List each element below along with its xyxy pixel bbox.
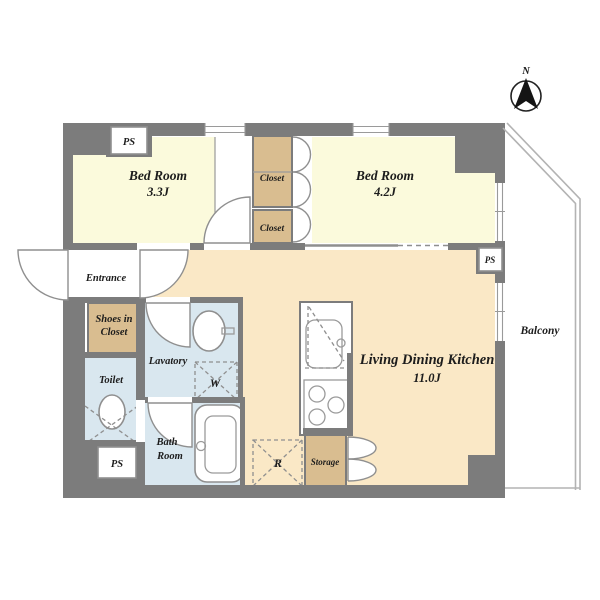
door-gap bbox=[204, 243, 250, 250]
compass-label: N bbox=[521, 66, 530, 77]
refrigerator-label: R bbox=[273, 458, 282, 470]
ps-right-label: PS bbox=[485, 255, 496, 265]
wall-segment bbox=[303, 428, 347, 434]
window-gap bbox=[353, 123, 389, 136]
ldk-size: 11.0J bbox=[413, 371, 441, 385]
storage-label: Storage bbox=[311, 457, 340, 467]
window-gap bbox=[205, 123, 245, 136]
entrance-door bbox=[18, 250, 68, 300]
door-gap bbox=[146, 297, 190, 303]
balcony-label: Balcony bbox=[520, 325, 561, 337]
bathroom-label-2: Room bbox=[156, 451, 183, 462]
floor-plan-drawing: N PS Bed Room 3.3J Closet Closet Bed Roo… bbox=[0, 0, 600, 600]
closet-folding-door bbox=[293, 137, 311, 242]
bedroom-2-size: 4.2J bbox=[373, 185, 397, 199]
wall-segment bbox=[347, 353, 353, 435]
ps-top-label: PS bbox=[123, 137, 135, 148]
door-gap bbox=[136, 400, 145, 442]
door-gap bbox=[137, 243, 190, 250]
ldk-label: Living Dining Kitchen bbox=[359, 352, 495, 368]
closet-upper-label: Closet bbox=[260, 174, 285, 184]
wall-segment bbox=[455, 123, 505, 173]
wall-segment bbox=[238, 297, 243, 403]
door-gap bbox=[148, 397, 192, 403]
lavatory-label: Lavatory bbox=[148, 356, 188, 367]
entrance-label: Entrance bbox=[85, 273, 127, 284]
bedroom-1-size: 3.3J bbox=[146, 185, 170, 199]
bedroom-2-label: Bed Room bbox=[355, 168, 414, 183]
wall-segment bbox=[85, 352, 136, 358]
balcony-outline bbox=[503, 123, 580, 490]
wall-segment bbox=[468, 455, 505, 498]
wall-segment bbox=[63, 297, 142, 303]
wash-basin bbox=[193, 311, 225, 351]
bathroom-label-1: Bath bbox=[155, 437, 177, 448]
closet-lower-label: Closet bbox=[260, 224, 285, 234]
wall-segment bbox=[63, 123, 73, 250]
wall-segment bbox=[240, 397, 245, 488]
toilet-label: Toilet bbox=[99, 375, 124, 386]
balcony-outer-line bbox=[507, 123, 580, 490]
bedroom-1-label: Bed Room bbox=[128, 168, 187, 183]
compass-north-icon bbox=[511, 78, 541, 111]
shoes-closet-label-2: Closet bbox=[101, 327, 129, 338]
wall-segment bbox=[63, 485, 468, 498]
floor-plan-page: N PS Bed Room 3.3J Closet Closet Bed Roo… bbox=[0, 0, 600, 600]
washer-label: W bbox=[210, 378, 221, 390]
ps-bottom-label: PS bbox=[111, 459, 123, 470]
shoes-closet-label-1: Shoes in bbox=[95, 314, 132, 325]
